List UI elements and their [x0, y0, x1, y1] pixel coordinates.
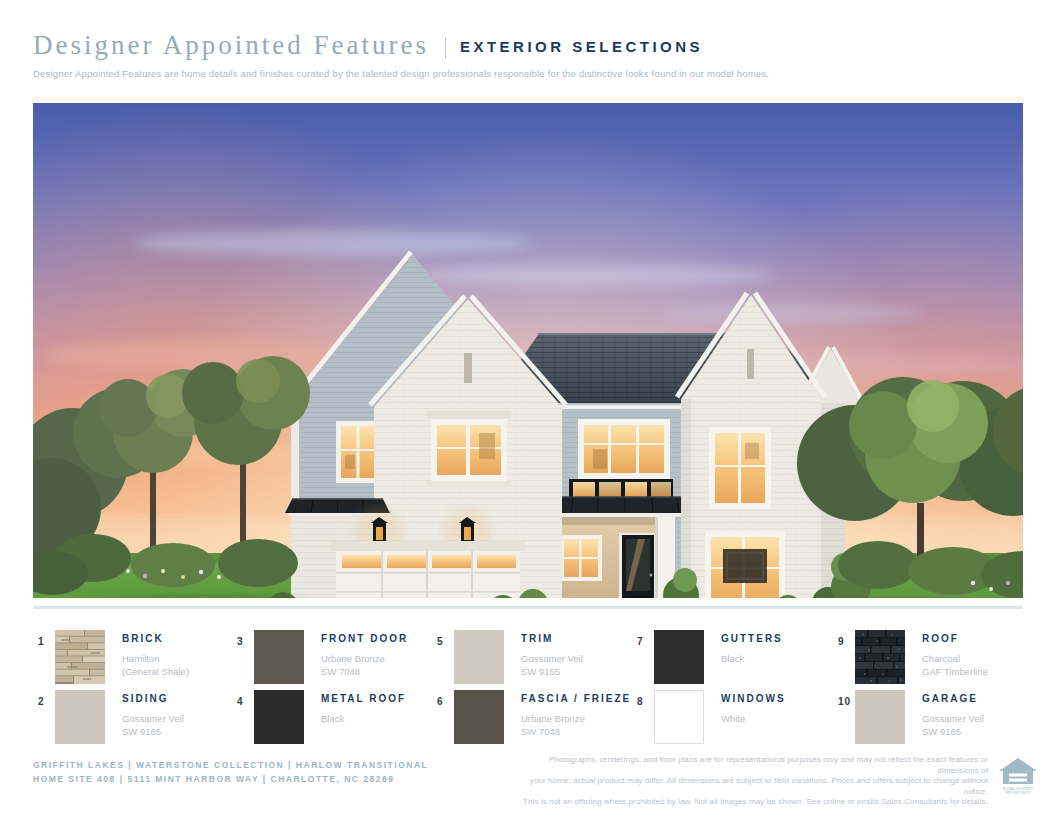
- header: Designer Appointed Features EXTERIOR SEL…: [33, 30, 1023, 79]
- item-label: WINDOWS: [721, 693, 831, 704]
- item-label: BRICK: [122, 633, 232, 644]
- item-value: Gossamer VeilSW 9165: [122, 712, 232, 738]
- legend-item-gutters: 7 GUTTERS Black: [637, 630, 827, 686]
- legend-item-garage: 10 GARAGE Gossamer VeilSW 9165: [838, 690, 1028, 746]
- porch-metal-roof: [549, 497, 701, 517]
- address-line: HOME SITE 408 | 5111 MINT HARBOR WAY | C…: [33, 772, 428, 786]
- item-label: GUTTERS: [721, 633, 831, 644]
- item-number: 4: [237, 696, 244, 707]
- item-value: Urbane BronzeSW 7048: [321, 652, 431, 678]
- title-section: EXTERIOR SELECTIONS: [460, 38, 703, 55]
- house-rendering: [33, 103, 1023, 598]
- item-number: 3: [237, 636, 244, 647]
- item-label: TRIM: [521, 633, 631, 644]
- item-label: FASCIA / FRIEZE: [521, 693, 631, 704]
- subtitle: Designer Appointed Features are home det…: [33, 68, 1023, 79]
- legend-item-windows: 8 WINDOWS White: [637, 690, 827, 746]
- item-value: Black: [321, 712, 431, 725]
- roof-swatch: [855, 630, 905, 684]
- item-number: 5: [437, 636, 444, 647]
- center-upper-window: [578, 419, 670, 479]
- item-label: ROOF: [922, 633, 1032, 644]
- item-label: SIDING: [122, 693, 232, 704]
- item-number: 8: [637, 696, 644, 707]
- metal-roof-swatch: [254, 690, 304, 744]
- item-label: GARAGE: [922, 693, 1032, 704]
- front-door-swatch: [254, 630, 304, 684]
- item-label: METAL ROOF: [321, 693, 431, 704]
- equal-housing-logo: EQUAL HOUSING OPPORTUNITY: [997, 756, 1039, 798]
- legal-disclaimer: Photographs, renderings, and floor plans…: [520, 755, 988, 808]
- item-value: Gossamer VeilSW 9165: [521, 652, 631, 678]
- legend-item-brick: 1 BRICK: [38, 630, 228, 686]
- fascia-swatch: [454, 690, 504, 744]
- page-title: Designer Appointed Features EXTERIOR SEL…: [33, 30, 1023, 61]
- item-value: White: [721, 712, 831, 725]
- title-serif: Designer Appointed Features: [33, 30, 429, 61]
- community-line: GRIFFITH LAKES | WATERSTONE COLLECTION |…: [33, 758, 428, 772]
- right-lower-window: [705, 531, 785, 598]
- item-number: 7: [637, 636, 644, 647]
- legend-item-siding: 2 SIDING Gossamer VeilSW 9165: [38, 690, 228, 746]
- brick-texture: [55, 630, 105, 684]
- house-rendering-svg: [33, 103, 1023, 598]
- title-divider: [445, 37, 446, 59]
- gable-double-window: [427, 411, 511, 487]
- legend-item-front-door: 3 FRONT DOOR Urbane BronzeSW 7048: [237, 630, 427, 686]
- item-number: 2: [38, 696, 45, 707]
- item-number: 1: [38, 636, 45, 647]
- item-value: Urbane BronzeSW 7048: [521, 712, 631, 738]
- item-label: FRONT DOOR: [321, 633, 431, 644]
- section-divider: [33, 606, 1023, 609]
- brick-swatch: [55, 630, 105, 684]
- front-door: [617, 533, 659, 598]
- right-upper-window: [709, 427, 771, 509]
- item-number: 6: [437, 696, 444, 707]
- item-value: Gossamer VeilSW 9165: [922, 712, 1032, 738]
- garage-door: [331, 541, 525, 598]
- item-number: 10: [838, 696, 851, 707]
- windows-swatch: [654, 690, 704, 744]
- trim-swatch: [454, 630, 504, 684]
- gutters-swatch: [654, 630, 704, 684]
- community-info: GRIFFITH LAKES | WATERSTONE COLLECTION |…: [33, 758, 428, 786]
- legend-item-trim: 5 TRIM Gossamer VeilSW 9165: [437, 630, 627, 686]
- roof-shingle-texture: [855, 630, 905, 684]
- item-value: Hamilton(General Shale): [122, 652, 232, 678]
- item-value: Black: [721, 652, 831, 665]
- siding-swatch: [55, 690, 105, 744]
- legend-item-metal-roof: 4 METAL ROOF Black: [237, 690, 427, 746]
- legend-item-fascia: 6 FASCIA / FRIEZE Urbane BronzeSW 7048: [437, 690, 627, 746]
- item-value: CharcoalGAF Timberline: [922, 652, 1032, 678]
- equal-housing-icon: EQUAL HOUSING OPPORTUNITY: [997, 756, 1039, 798]
- exterior-selections-sheet: Designer Appointed Features EXTERIOR SEL…: [0, 0, 1055, 815]
- item-number: 9: [838, 636, 845, 647]
- svg-text:OPPORTUNITY: OPPORTUNITY: [1005, 791, 1031, 795]
- legend-item-roof: 9: [838, 630, 1028, 686]
- garage-swatch: [855, 690, 905, 744]
- gray-gable-window: [336, 421, 380, 483]
